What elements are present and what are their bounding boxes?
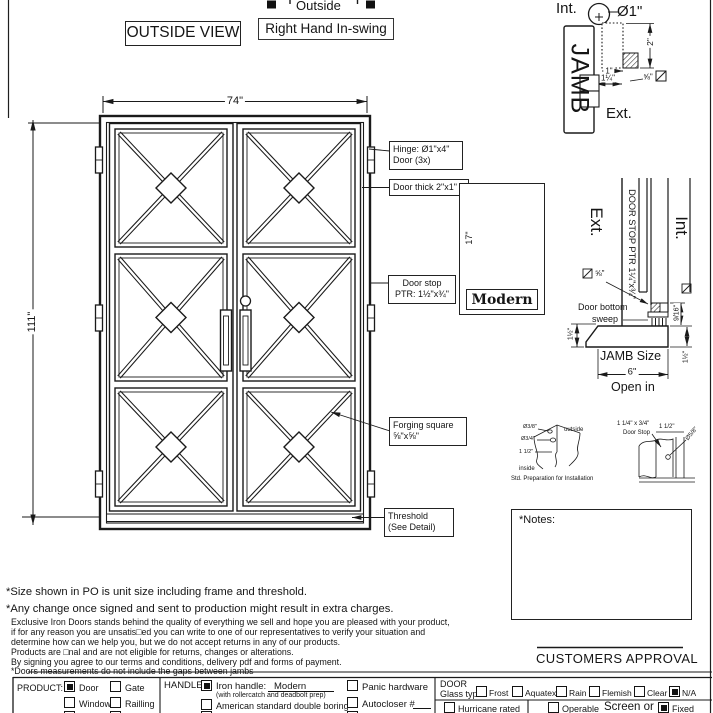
prep-dia34: Ø3/4" [521,436,535,442]
product-option-label: Door [79,683,99,693]
section-int-label: Int. [671,216,691,240]
product-option-label: Window [79,699,111,709]
checkbox-railling[interactable] [110,697,121,708]
prep-dim112: 1 1/2" [519,449,533,455]
glass-option-label: Flemish [602,688,632,698]
checkbox-hurricane[interactable] [444,702,455,713]
disclaimer-small: Exclusive Iron Doors stands behind the q… [11,617,450,627]
door-elevation [96,116,375,529]
hinge-callout: Hinge: Ø1"x4"Door (3x) [389,141,463,170]
section-doorstop-label: DOOR STOP PTR 1¼"x¾" [627,189,637,299]
product-option-label: Gate [125,683,145,693]
hinge-dim-2: 2" [645,36,655,48]
disclaimer-big-2: *Any change once signed and sent to prod… [6,603,393,615]
door-section-label: DOOR [440,679,467,689]
stopdet-line2: Door Stop [623,430,650,436]
prep-inside: inside [519,466,535,472]
iron-handle-sub: (with rollercatch and deadbolt prep) [216,692,326,699]
checkbox-iron-handle[interactable] [201,680,212,691]
glass-option-label: Rain [569,688,586,698]
hinge-dim-58: ⅝" [643,73,653,82]
disclaimer-small: determine how can we help you, but we do… [11,637,340,647]
checkbox-na[interactable] [669,686,680,697]
stopdet-line1: 1 1/4" x 3/4" [617,421,649,427]
screen-or-label: Screen or [604,701,654,713]
checkbox-operable[interactable] [548,702,559,713]
open-in-label: Open in [611,380,655,394]
disclaimer-big-1: *Size shown in PO is unit size including… [6,586,307,598]
jamb-size-value: 6" [626,367,639,378]
handle-style-label: Modern [466,289,538,310]
glass-option-label: Frost [489,688,508,698]
sweep-label-1: Door bottom [578,302,628,312]
section-dim-916: 9/16" [674,303,681,323]
autocloser-label: Autocloser # [362,699,415,710]
glass-option-label: Aquatex [525,688,556,698]
section-dim-right: 1½" [683,351,690,363]
jamb-size-label: JAMB Size [600,349,661,363]
customers-approval-label: CUSTOMERS APPROVAL [536,651,684,666]
threshold-callout: Threshold(See Detail) [384,508,454,537]
section-ext-label: Ext. [586,207,606,236]
glass-option-label: Clear [647,688,667,698]
prep-outside: outside [564,427,583,433]
product-option-label: Railling [125,699,155,709]
sweep-label-2: sweep [592,314,618,324]
checkbox-panic-hardware[interactable] [347,680,358,691]
disclaimer-small: Products are □nal and are not eligible f… [11,647,294,657]
checkbox-window[interactable] [64,697,75,708]
door-thick-callout: Door thick 2"x1" [389,179,469,196]
fixed-label: Fixed [672,704,694,713]
double-boring-label: American standard double boring [216,701,349,711]
prep-caption: Std. Preparation for Installation [511,476,593,482]
checkbox-door[interactable] [64,681,75,692]
prep-dia38: Ø3/8" [523,424,537,430]
operable-label: Operable [562,704,599,713]
outside-view-label: OUTSIDE VIEW [125,21,241,46]
hinge-ext-label: Ext. [606,105,632,122]
checkbox-rain[interactable] [556,686,567,697]
swing-direction-label: Right Hand In-swing [258,18,394,40]
door-width-dim: 74" [225,95,245,107]
section-dim-58: ⅝" [595,269,605,278]
handle-dim-17: 17" [464,229,474,246]
product-label: PRODUCT: [17,683,63,693]
door-stop-callout: Door stopPTR: 1½"x¾" [388,275,456,304]
checkbox-flemish[interactable] [589,686,600,697]
hurricane-label: Hurricane rated [458,704,520,713]
iron-handle-label: Iron handle: [216,681,266,692]
iron-handle-underline [268,681,334,692]
handle-label: HANDLE [164,680,203,691]
glass-option-label: N/A [682,688,696,698]
hinge-dim-125: 1¼" [601,74,615,83]
checkbox-autocloser[interactable] [347,697,358,708]
section-dim-left: 1½" [568,326,575,342]
deadbolt-circle [241,296,251,306]
forging-square-callout: Forging square⅝"x⅝" [389,417,467,446]
checkbox-frost[interactable] [476,686,487,697]
checkbox-double-boring[interactable] [201,699,212,710]
notes-label: *Notes: [519,514,555,526]
checkbox-gate[interactable] [110,681,121,692]
swing-outside-label: Outside [296,0,341,13]
panic-hardware-label: Panic hardware [362,682,428,693]
checkbox-clear[interactable] [634,686,645,697]
disclaimer-small: *Doors measurements do not include the g… [11,666,254,676]
disclaimer-small: if for any reason you are unsatis□ed you… [11,627,425,637]
door-height-dim: 111" [26,310,38,335]
checkbox-aquatex[interactable] [512,686,523,697]
order-drawing-sheet: OUTSIDE VIEW Outside Right Hand In-swing… [0,0,713,713]
checkbox-fixed[interactable] [658,702,669,713]
jamb-label: JAMB [565,44,594,115]
hinge-dia-label: Ø1" [617,3,642,20]
autocloser-underline [413,698,431,709]
hinge-int-label: Int. [556,0,577,17]
stopdet-dim112: 1 1/2" [659,424,674,430]
